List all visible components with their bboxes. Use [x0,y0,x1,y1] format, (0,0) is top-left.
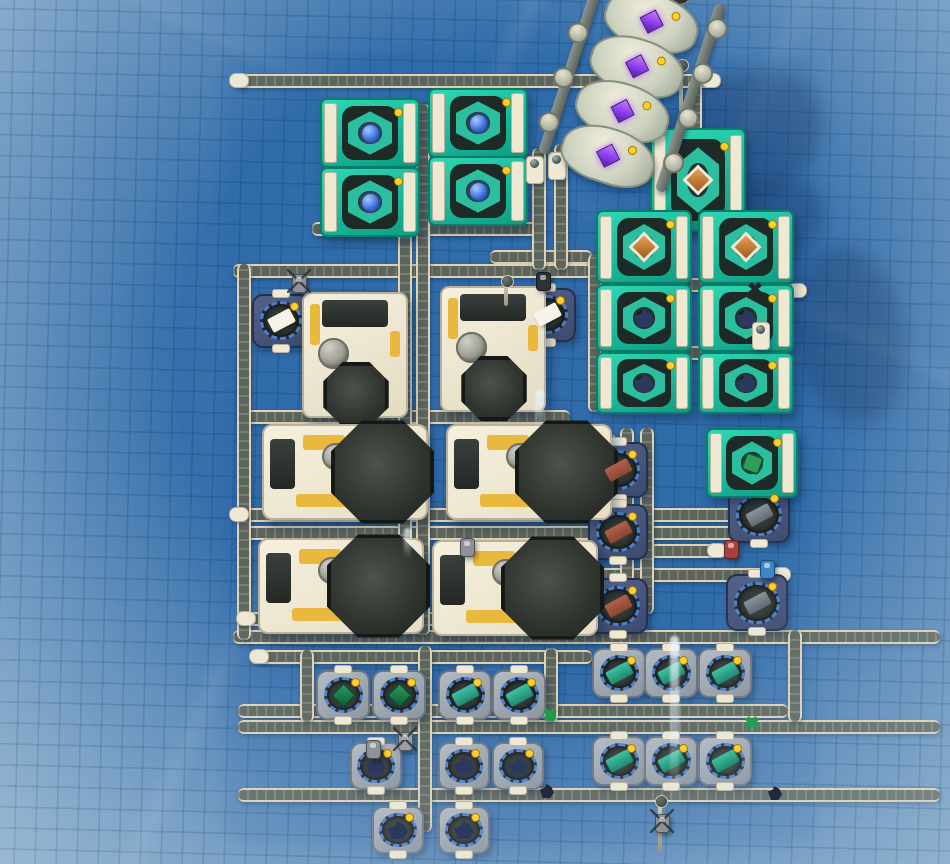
assembler-machine[interactable] [596,210,692,284]
storage-pad[interactable] [592,736,646,786]
status-light [351,678,360,687]
machine-rail [676,289,688,347]
status-light [733,744,742,753]
status-light [679,744,688,753]
status-light [666,220,675,229]
refinery-machine[interactable] [258,538,424,634]
machine-core [450,164,506,218]
furnace-drum [461,356,526,421]
worker-bot[interactable] [724,540,739,559]
light-beam [670,636,679,811]
status-light [666,361,675,370]
status-light [679,656,688,665]
assembler-machine[interactable] [698,284,794,352]
assembler-machine[interactable] [320,167,420,237]
scanner-post[interactable] [752,322,770,350]
status-light [527,678,536,687]
refinery-machine[interactable] [432,540,598,636]
machine-core [726,436,777,490]
conveyor-belt[interactable] [300,650,314,722]
status-light [626,145,637,156]
lamp-post[interactable] [504,280,508,306]
storage-pad[interactable] [492,670,546,720]
purple-gem-item [640,9,664,33]
refinery-machine[interactable] [446,424,612,520]
factory-world [0,0,950,864]
machine-core [342,106,398,160]
furnace-drum [323,362,388,427]
machine-rail [710,433,721,492]
status-light [407,678,416,687]
storage-pad[interactable] [726,574,788,631]
machine-rail [600,216,612,279]
assembler-machine[interactable] [428,88,528,158]
refinery-intake [270,439,294,490]
machine-rail [511,93,523,152]
storage-pad[interactable] [438,670,492,720]
furnace-machine[interactable] [440,286,546,412]
status-light [666,294,675,303]
purple-gem-item [611,99,635,123]
machine-rail [432,161,444,220]
status-light [720,142,729,151]
status-light [670,11,681,22]
worker-bot[interactable] [366,740,381,759]
storage-pad[interactable] [438,742,490,790]
worker-bot[interactable] [460,538,475,557]
light-beam [535,390,544,428]
storage-pad[interactable] [438,806,490,854]
item-blue-orb [470,183,487,200]
status-light [627,656,636,665]
status-light [641,100,652,111]
purple-gem-item [625,54,649,78]
status-light [502,166,511,175]
status-light [768,361,777,370]
status-light [768,294,777,303]
storage-pad[interactable] [698,648,752,698]
storage-pad[interactable] [698,736,752,786]
machine-rail [702,216,714,279]
game-viewport [0,0,950,864]
belt-endcap[interactable] [229,73,249,88]
refinery-drum [501,536,604,639]
machine-rail [676,357,688,409]
machine-rail [782,433,793,492]
status-light [655,56,666,67]
refinery-drum [331,420,434,523]
light-beam [404,528,411,558]
item-blue-orb [362,125,379,142]
assembler-machine[interactable] [596,352,692,414]
machine-rail [702,289,714,347]
furnace-acc2 [390,331,400,358]
refinery-intake [454,439,478,490]
machine-rail [600,289,612,347]
status-light [627,744,636,753]
item-blue-orb [470,115,487,132]
furnace-acc1 [310,304,320,345]
machine-rail [600,357,612,409]
status-light [394,177,403,186]
status-light [773,438,782,447]
machine-core [617,292,670,345]
purple-gem-item [596,144,620,168]
belt-endcap[interactable] [229,507,249,522]
conveyor-belt[interactable] [237,264,251,640]
storage-pad[interactable] [372,806,424,854]
machine-rail [702,357,714,409]
machine-core [719,218,772,275]
machine-core [719,359,772,407]
worker-bot[interactable] [292,274,307,293]
machine-rail [778,289,790,347]
status-light [394,108,403,117]
machine-rail [403,103,415,162]
refinery-intake [440,555,464,606]
assembler-machine[interactable] [698,352,794,414]
machine-rail [778,216,790,279]
machine-rail [324,172,336,231]
refinery-machine[interactable] [262,424,428,520]
furnace-top [460,294,525,321]
furnace-acc1 [448,298,458,339]
assembler-machine[interactable] [706,428,798,498]
furnace-machine[interactable] [302,292,408,418]
status-light [733,656,742,665]
assembler-machine[interactable] [596,284,692,352]
item-blue-orb [362,194,379,211]
machine-rail [403,172,415,231]
machine-core [617,359,670,407]
storage-pad[interactable] [592,648,646,698]
refinery-drum [515,420,618,523]
machine-rail [324,103,336,162]
refinery-drum [327,534,430,637]
worker-bot[interactable] [398,732,413,751]
machine-rail [676,216,688,279]
furnace-top [322,300,387,327]
status-light [502,98,511,107]
machine-core [617,218,670,275]
machine-core [450,96,506,150]
conveyor-belt[interactable] [238,788,940,802]
belt-endcap[interactable] [249,649,269,664]
furnace-acc2 [528,325,538,352]
status-light [473,678,482,687]
machine-rail [778,357,790,409]
worker-bot[interactable] [655,814,670,833]
machine-rail [511,161,523,220]
status-light [768,220,777,229]
storage-pad[interactable] [316,670,370,720]
assembler-machine[interactable] [698,210,794,284]
refinery-intake [266,553,290,604]
conveyor-belt[interactable] [788,630,802,722]
assembler-machine[interactable] [320,98,420,168]
machine-rail [432,93,444,152]
storage-pad[interactable] [492,742,544,790]
worker-bot[interactable] [536,272,551,291]
assembler-machine[interactable] [428,156,528,226]
storage-pad[interactable] [372,670,426,720]
belt-endcap[interactable] [236,611,256,626]
worker-bot[interactable] [760,560,775,579]
machine-core [342,175,398,229]
